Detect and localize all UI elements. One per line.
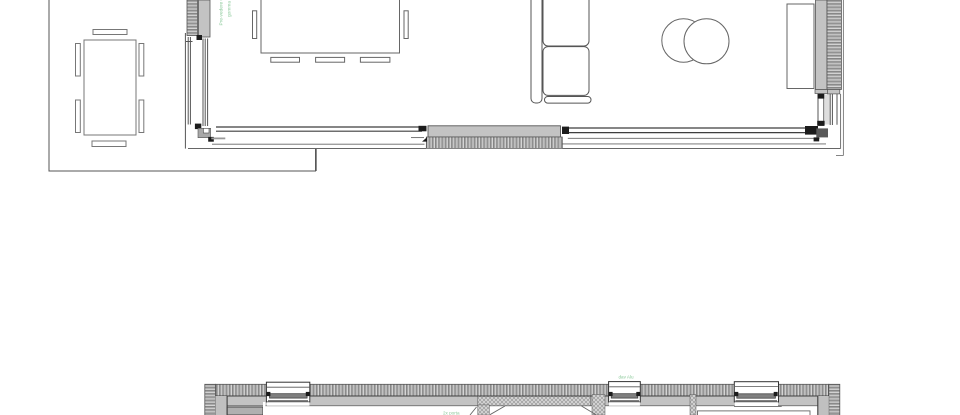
svg-text:dav Alu: dav Alu: [619, 375, 635, 380]
svg-text:2x porta: 2x porta: [443, 411, 460, 415]
svg-text:gomma dft: gomma dft: [227, 0, 233, 17]
svg-text:Pre-vedere una: Pre-vedere una: [219, 0, 225, 26]
